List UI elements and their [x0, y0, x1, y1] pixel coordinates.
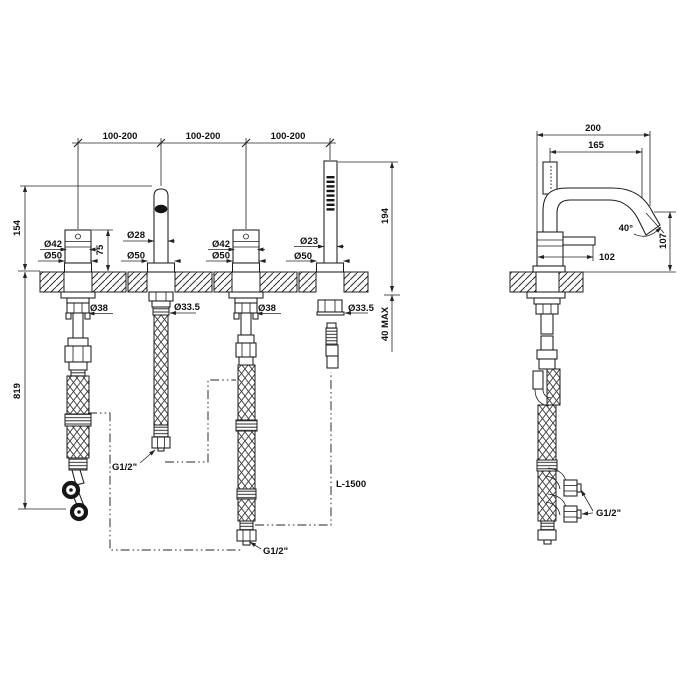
lever-side [563, 237, 595, 245]
dim-hole-spacing: 100-200 100-200 100-200 [72, 131, 336, 229]
spout-front: Ø28 Ø50 [121, 189, 181, 272]
label-wand-base: Ø50 [294, 251, 312, 262]
countertop-front [40, 272, 368, 292]
label-h2-shank: Ø38 [258, 303, 276, 314]
handle-left: Ø42 Ø50 [38, 230, 98, 272]
dim-outlet-height: 107 [583, 212, 676, 272]
handshower-wand: Ø23 Ø50 [286, 161, 350, 272]
label-wand-shank: Ø33.5 [348, 303, 375, 314]
dim-200: 200 [585, 123, 601, 134]
label-spout-connection: G1/2" [112, 462, 137, 473]
dim-40max: 40 MAX [380, 306, 391, 341]
handle-left-undercounter: Ø38 [61, 292, 113, 519]
dim-154: 154 [12, 219, 23, 236]
dim-span-2: 100-200 [186, 131, 221, 142]
phantom-hose-routing: L-1500 [88, 372, 366, 550]
side-view: 200 165 40° [510, 123, 676, 544]
label-side-connection: G1/2" [596, 508, 621, 519]
dim-107: 107 [658, 233, 669, 249]
dim-deck-max: 40 MAX [380, 295, 400, 352]
label-spout-shank: Ø33.5 [174, 302, 201, 313]
spout-undercounter: Ø33.5 G1/2" [112, 292, 201, 473]
countertop-side [510, 272, 583, 292]
supply-nut-1 [564, 480, 577, 496]
label-h1-base: Ø50 [44, 251, 62, 262]
handle-right-undercounter: Ø38 G1/2" [229, 292, 288, 557]
dim-handle-height: 75 [92, 230, 113, 271]
label-h1-shank: Ø38 [90, 303, 108, 314]
dim-102: 102 [599, 252, 615, 263]
label-h1-diameter: Ø42 [44, 239, 62, 250]
spout-side [533, 162, 660, 272]
dim-span-1: 100-200 [103, 131, 138, 142]
supply-nut-2 [564, 506, 577, 522]
label-wand-diameter: Ø23 [300, 236, 318, 247]
label-h2-connection: G1/2" [263, 546, 288, 557]
label-spout-diameter: Ø28 [127, 230, 145, 241]
dim-194: 194 [380, 207, 391, 224]
faucet-technical-drawing: 100-200 100-200 100-200 154 819 75 [0, 0, 700, 700]
dim-span-3: 100-200 [271, 131, 306, 142]
drawing-canvas: 100-200 100-200 100-200 154 819 75 [0, 0, 700, 700]
handshower-undercounter: Ø33.5 [317, 300, 375, 368]
label-spout-base: Ø50 [127, 251, 145, 262]
label-h2-diameter: Ø42 [212, 239, 230, 250]
dim-819: 819 [12, 383, 23, 399]
side-undercounter: G1/2" [527, 292, 621, 544]
label-hose-length: L-1500 [336, 479, 366, 490]
dim-165: 165 [588, 140, 605, 151]
handle-right: Ø42 Ø50 [206, 230, 266, 272]
label-h2-base: Ø50 [212, 251, 230, 262]
aerator [155, 205, 168, 213]
dim-40deg: 40° [619, 223, 634, 234]
dim-hose-drop: 819 [12, 272, 66, 509]
front-view: 100-200 100-200 100-200 154 819 75 [12, 131, 400, 557]
